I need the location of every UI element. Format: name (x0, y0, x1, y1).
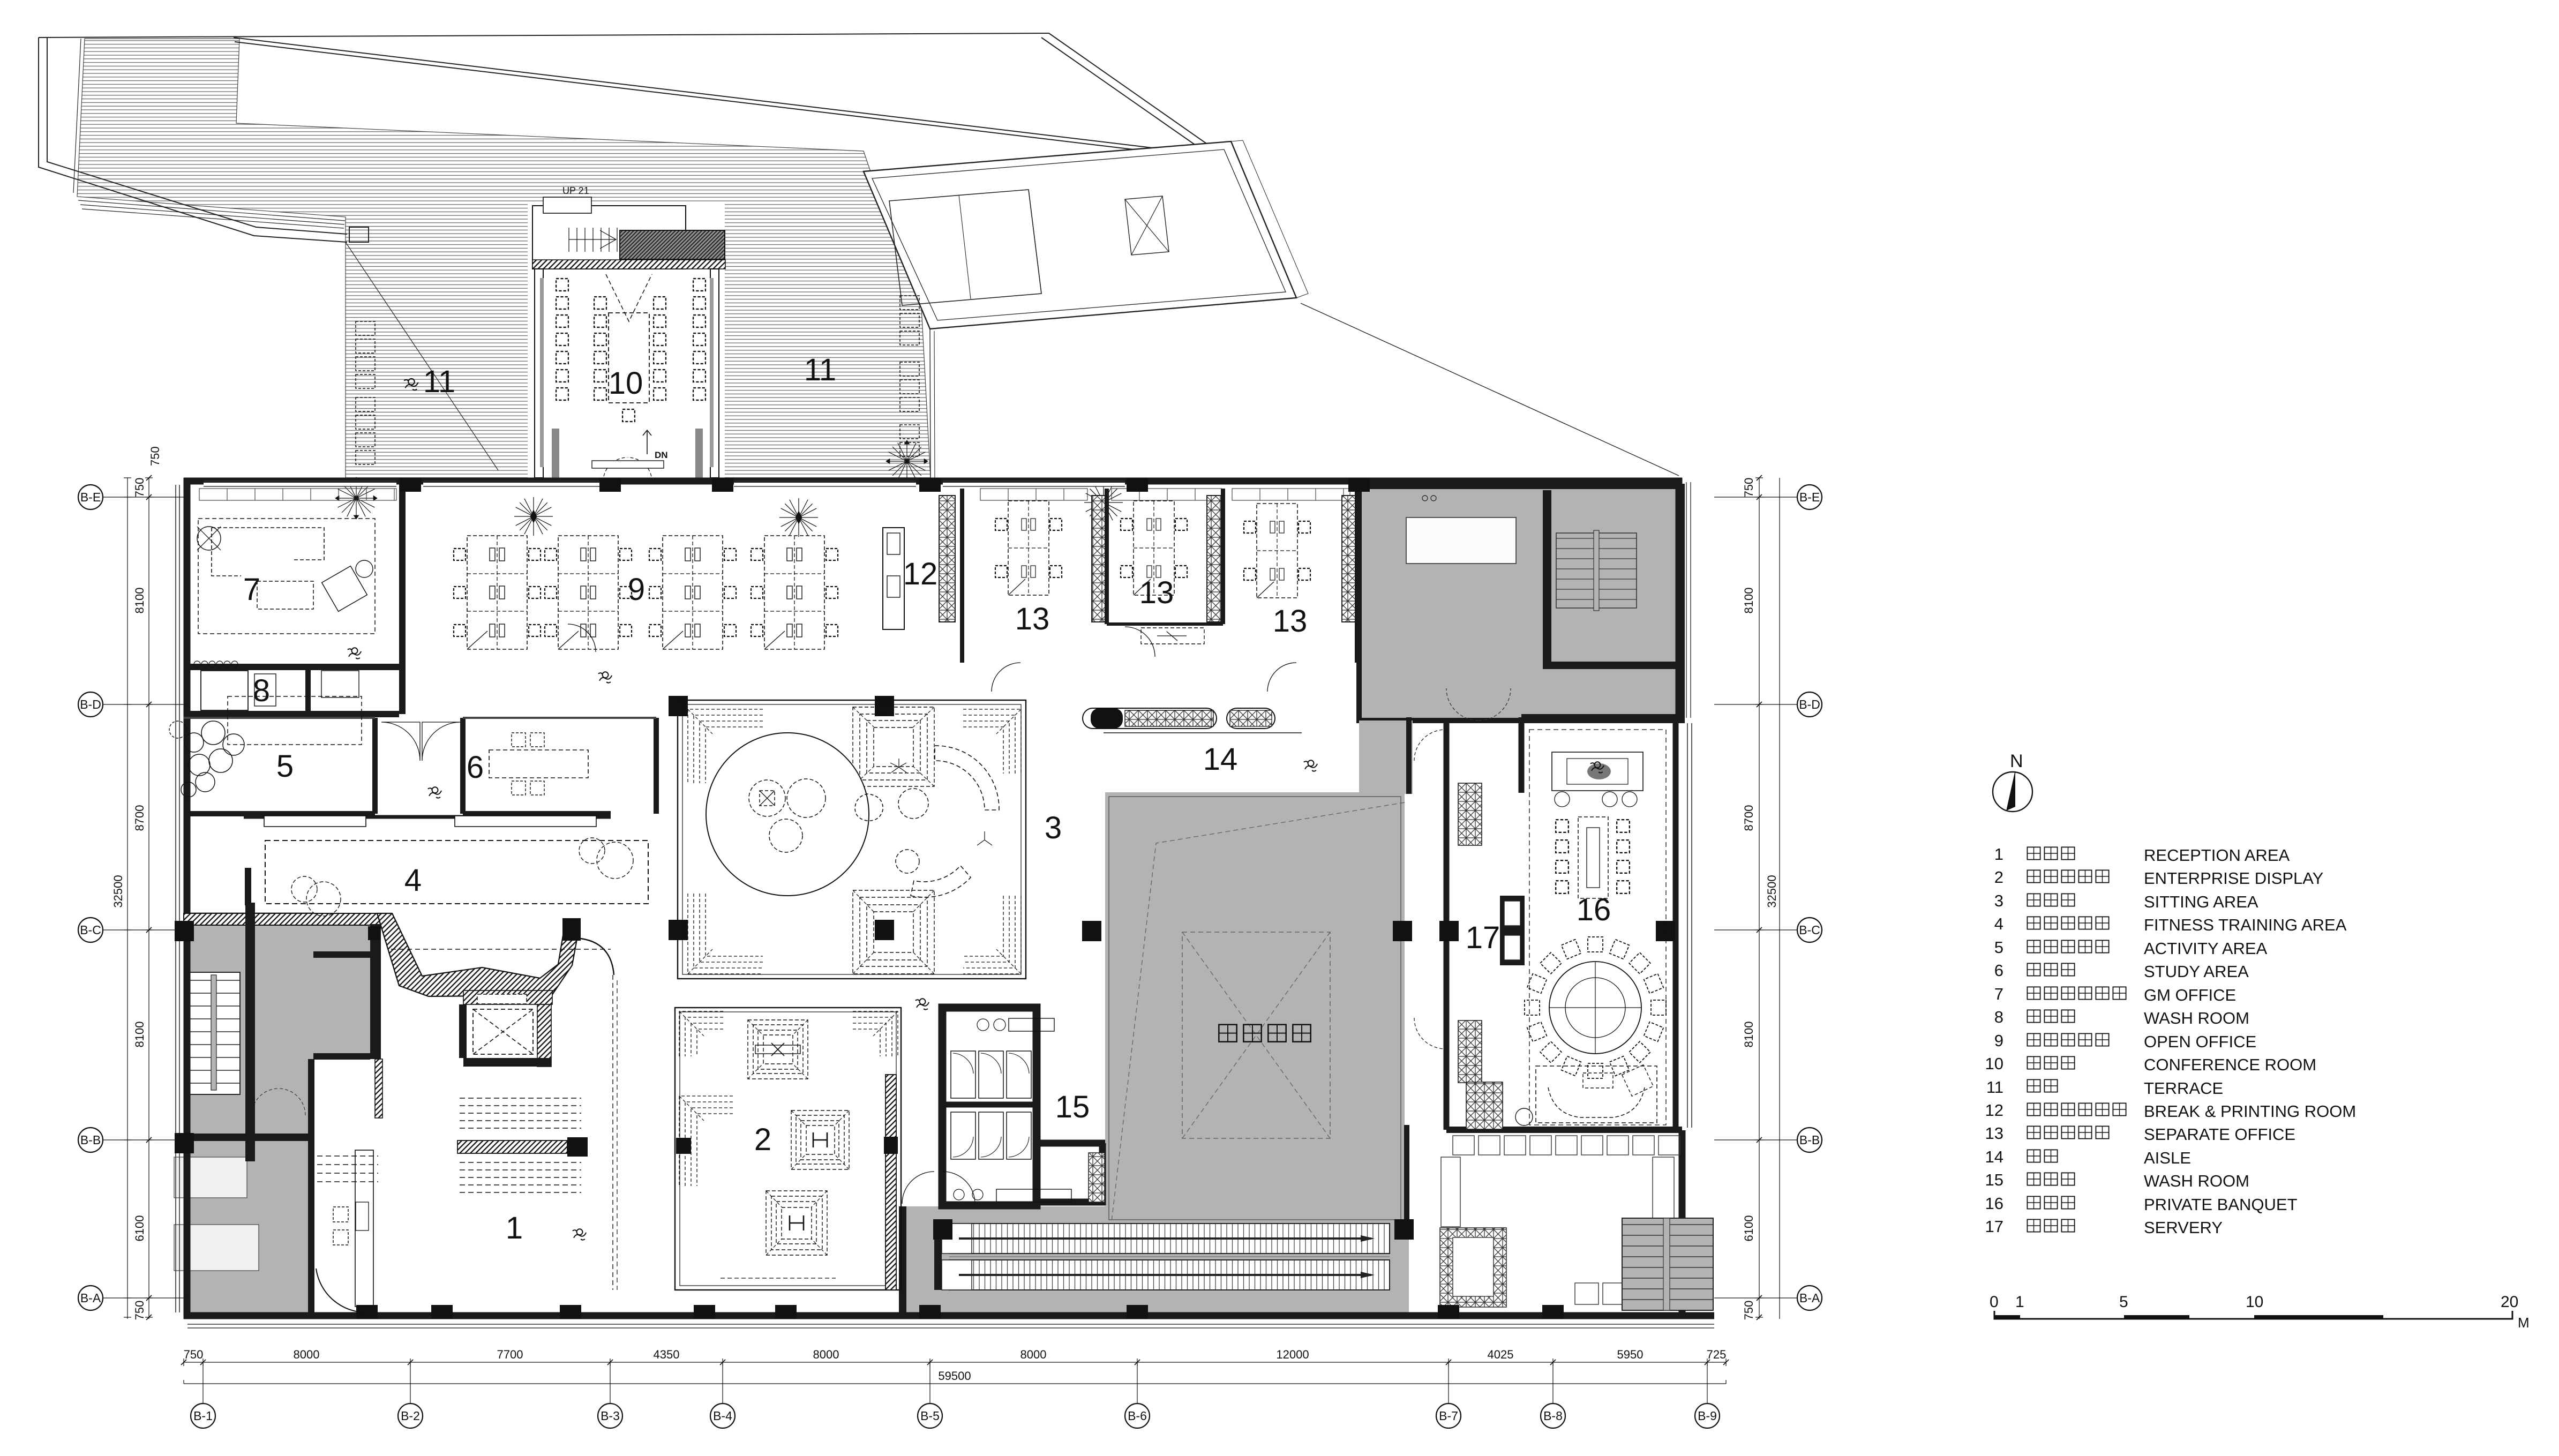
svg-text:14: 14 (1203, 742, 1238, 777)
svg-text:AISLE: AISLE (2144, 1149, 2191, 1167)
svg-text:4: 4 (1994, 914, 2003, 933)
svg-text:B-2: B-2 (401, 1409, 420, 1423)
svg-text:2: 2 (754, 1122, 771, 1157)
svg-text:SITTING AREA: SITTING AREA (2144, 892, 2258, 911)
svg-text:SEPARATE OFFICE: SEPARATE OFFICE (2144, 1125, 2295, 1144)
svg-text:6: 6 (1994, 961, 2003, 980)
svg-text:WASH ROOM: WASH ROOM (2144, 1009, 2249, 1027)
svg-text:10: 10 (1985, 1054, 2003, 1073)
svg-text:6100: 6100 (1742, 1215, 1755, 1242)
svg-text:N: N (2010, 751, 2023, 771)
svg-text:4350: 4350 (654, 1348, 680, 1361)
svg-text:B-5: B-5 (920, 1409, 940, 1423)
svg-text:8700: 8700 (133, 805, 146, 831)
svg-text:B-8: B-8 (1543, 1409, 1563, 1423)
svg-text:6: 6 (467, 750, 484, 785)
svg-text:UP 21: UP 21 (562, 185, 589, 196)
svg-text:DN: DN (655, 450, 668, 460)
svg-text:FITNESS TRAINING AREA: FITNESS TRAINING AREA (2144, 915, 2347, 934)
svg-text:725: 725 (1707, 1348, 1727, 1361)
svg-text:9: 9 (1994, 1031, 2003, 1050)
svg-text:10: 10 (609, 366, 643, 401)
svg-text:3: 3 (1045, 810, 1062, 845)
svg-text:4: 4 (404, 863, 422, 898)
svg-text:750: 750 (184, 1348, 204, 1361)
svg-text:BREAK & PRINTING ROOM: BREAK & PRINTING ROOM (2144, 1102, 2356, 1121)
svg-text:15: 15 (1055, 1090, 1090, 1124)
svg-text:B-9: B-9 (1698, 1409, 1717, 1423)
svg-text:8100: 8100 (133, 588, 146, 614)
svg-text:14: 14 (1985, 1147, 2003, 1166)
svg-text:8000: 8000 (294, 1348, 320, 1361)
svg-text:17: 17 (1985, 1217, 2003, 1236)
svg-text:CONFERENCE ROOM: CONFERENCE ROOM (2144, 1055, 2316, 1074)
svg-text:7: 7 (1994, 985, 2003, 1003)
svg-text:B-C: B-C (1799, 923, 1820, 937)
svg-text:B-A: B-A (1799, 1291, 1820, 1305)
svg-text:B-D: B-D (1799, 697, 1820, 711)
svg-text:B-B: B-B (1799, 1133, 1820, 1147)
svg-text:0: 0 (1990, 1293, 1999, 1311)
svg-text:B-D: B-D (80, 697, 101, 711)
svg-text:32500: 32500 (111, 875, 125, 907)
svg-text:32500: 32500 (1765, 875, 1778, 907)
svg-text:15: 15 (1985, 1170, 2003, 1189)
svg-text:PRIVATE BANQUET: PRIVATE BANQUET (2144, 1195, 2298, 1214)
svg-text:13: 13 (1015, 602, 1050, 636)
svg-text:B-4: B-4 (713, 1409, 732, 1423)
svg-text:ACTIVITY AREA: ACTIVITY AREA (2144, 939, 2268, 958)
svg-text:5950: 5950 (1617, 1348, 1644, 1361)
svg-text:11: 11 (804, 352, 836, 387)
svg-text:7: 7 (243, 572, 260, 607)
svg-text:8700: 8700 (1742, 805, 1755, 831)
svg-text:GM OFFICE: GM OFFICE (2144, 986, 2236, 1004)
svg-text:750: 750 (148, 446, 162, 466)
svg-text:3: 3 (1994, 891, 2003, 910)
svg-text:13: 13 (1985, 1124, 2003, 1143)
svg-text:6100: 6100 (133, 1215, 146, 1242)
svg-text:12000: 12000 (1276, 1348, 1309, 1361)
svg-text:B-1: B-1 (193, 1409, 213, 1423)
svg-text:B-A: B-A (80, 1291, 101, 1305)
svg-text:8100: 8100 (133, 1022, 146, 1048)
svg-text:8: 8 (253, 673, 270, 708)
svg-text:750: 750 (133, 1301, 146, 1320)
svg-text:10: 10 (2246, 1293, 2263, 1311)
svg-text:TERRACE: TERRACE (2144, 1079, 2223, 1098)
svg-text:SERVERY: SERVERY (2144, 1218, 2223, 1237)
svg-text:OPEN OFFICE: OPEN OFFICE (2144, 1032, 2256, 1051)
svg-text:12: 12 (903, 557, 938, 591)
svg-text:11: 11 (1986, 1078, 2003, 1097)
svg-text:1: 1 (1994, 845, 2003, 864)
svg-text:B-E: B-E (80, 490, 101, 504)
svg-text:1: 1 (506, 1211, 523, 1245)
svg-text:WASH ROOM: WASH ROOM (2144, 1172, 2249, 1190)
svg-text:5: 5 (276, 749, 294, 784)
svg-text:750: 750 (1742, 478, 1755, 498)
svg-text:7700: 7700 (497, 1348, 523, 1361)
svg-text:17: 17 (1466, 920, 1500, 955)
svg-text:1: 1 (2015, 1293, 2024, 1311)
svg-text:2: 2 (1994, 868, 2003, 887)
svg-text:ENTERPRISE DISPLAY: ENTERPRISE DISPLAY (2144, 869, 2323, 888)
svg-text:20: 20 (2501, 1293, 2518, 1311)
svg-text:B-7: B-7 (1439, 1409, 1458, 1423)
svg-text:RECEPTION AREA: RECEPTION AREA (2144, 846, 2290, 865)
svg-text:B-E: B-E (1799, 490, 1820, 504)
svg-text:8100: 8100 (1742, 1022, 1755, 1048)
svg-text:13: 13 (1139, 575, 1174, 610)
svg-text:B-C: B-C (80, 923, 101, 937)
svg-text:8100: 8100 (1742, 588, 1755, 614)
svg-text:B-B: B-B (80, 1133, 101, 1147)
svg-text:STUDY AREA: STUDY AREA (2144, 962, 2249, 981)
svg-text:16: 16 (1985, 1194, 2003, 1213)
svg-text:8: 8 (1994, 1008, 2003, 1026)
svg-text:750: 750 (1742, 1301, 1755, 1320)
svg-text:750: 750 (133, 478, 146, 498)
svg-text:5: 5 (2119, 1293, 2128, 1311)
svg-text:9: 9 (628, 572, 645, 607)
svg-text:M: M (2518, 1315, 2530, 1331)
svg-text:59500: 59500 (938, 1369, 971, 1383)
svg-text:11: 11 (423, 364, 455, 399)
svg-text:4025: 4025 (1488, 1348, 1514, 1361)
svg-text:5: 5 (1994, 938, 2003, 957)
svg-text:B-6: B-6 (1128, 1409, 1147, 1423)
svg-text:8000: 8000 (813, 1348, 839, 1361)
svg-text:B-3: B-3 (601, 1409, 620, 1423)
svg-text:12: 12 (1985, 1101, 2003, 1120)
svg-text:13: 13 (1273, 604, 1308, 639)
svg-text:8000: 8000 (1020, 1348, 1047, 1361)
svg-text:16: 16 (1577, 892, 1611, 927)
